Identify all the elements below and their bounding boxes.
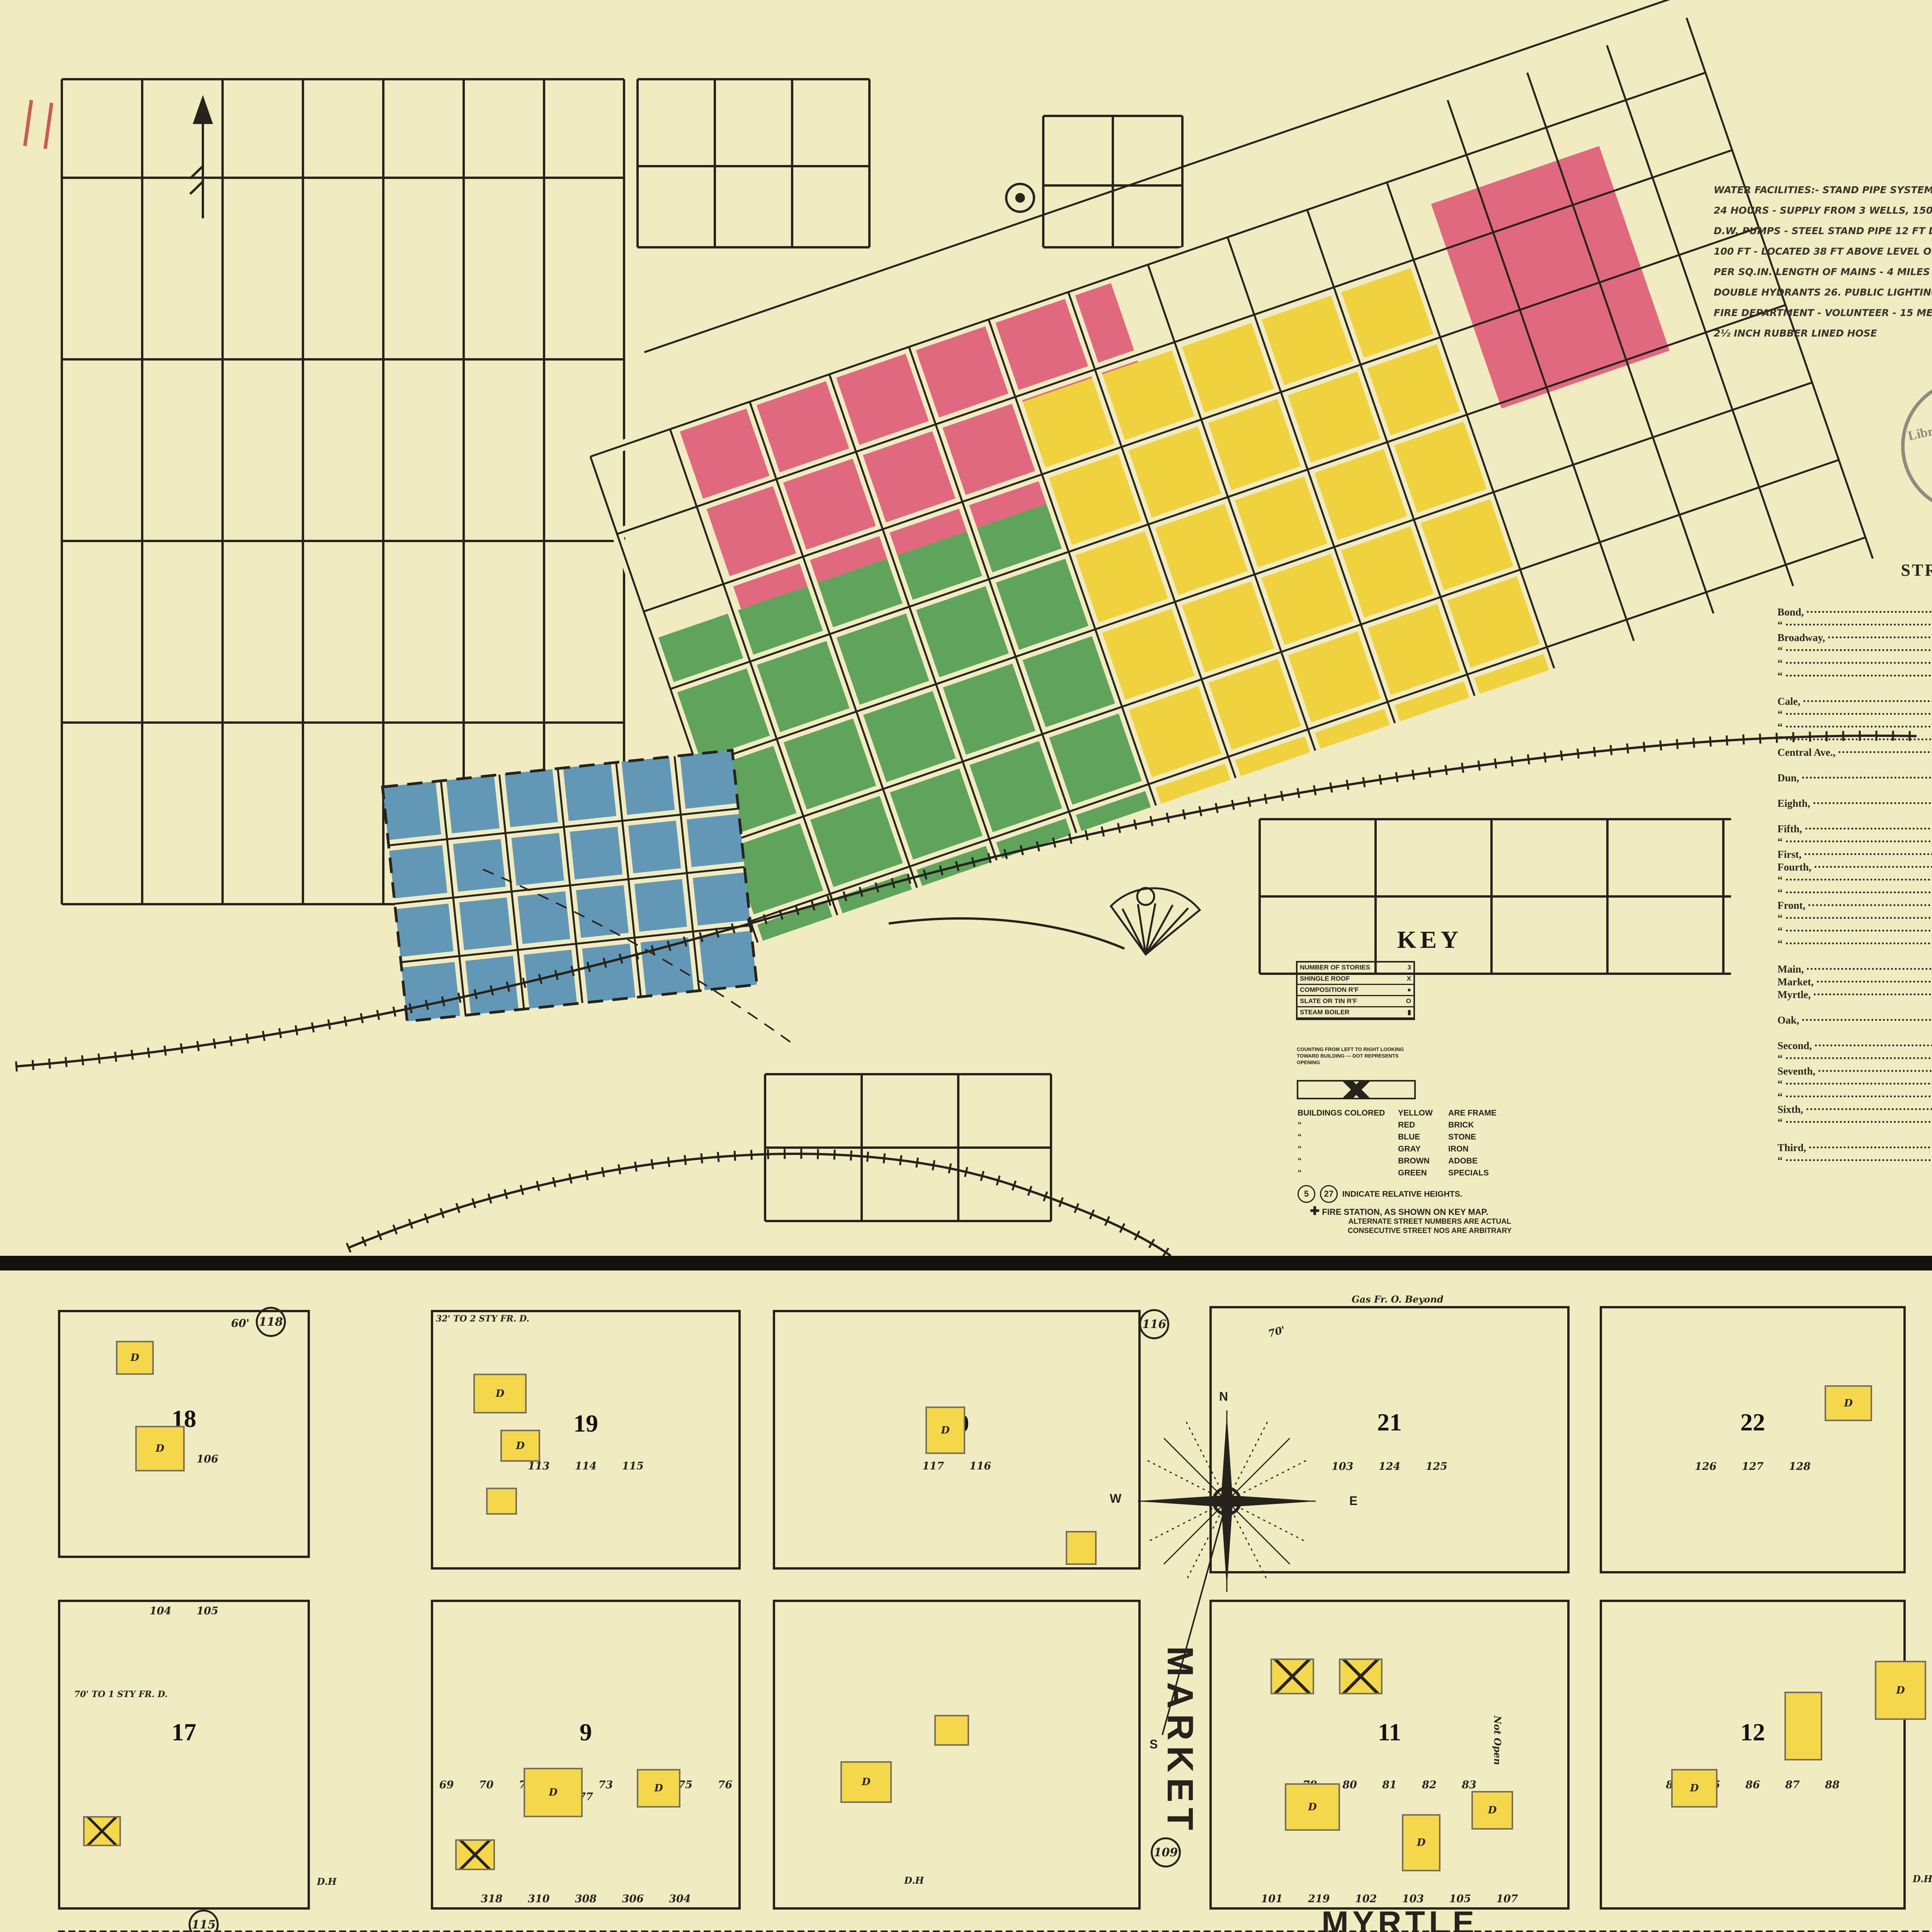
block-top-lot-numbers: 104 105 xyxy=(60,1605,308,1617)
map-item-label: D xyxy=(156,1443,165,1454)
color-material: SPECIALS xyxy=(1448,1167,1562,1179)
dot-leader xyxy=(1786,726,1932,728)
dot-leader xyxy=(1786,879,1932,881)
index-row: B xyxy=(1777,594,1932,606)
map-item-label: MARKET xyxy=(1159,1646,1201,1835)
block-number: 17 xyxy=(60,1718,308,1747)
map-item-label: D.H xyxy=(1913,1873,1932,1884)
key-color-row: “ BROWN ADOBE xyxy=(1298,1155,1562,1167)
map-item: D xyxy=(840,1761,892,1803)
symbol-glyph: 3 xyxy=(1408,964,1411,971)
block-bottom-lot-numbers: 101 219 102 103 105 107 xyxy=(1212,1893,1567,1905)
street-name: Seventh, xyxy=(1777,1065,1815,1077)
key-alt-note-2: CONSECUTIVE STREET NOS ARE ARBITRARY xyxy=(1294,1227,1565,1235)
map-item-label: 60' xyxy=(231,1317,250,1330)
fire-station-cross-icon: ✚ xyxy=(1310,1205,1320,1218)
map-item-label: D.H xyxy=(904,1875,924,1886)
map-item-label: D xyxy=(654,1782,663,1794)
dot-leader xyxy=(1807,611,1932,613)
street-name: “ xyxy=(1777,657,1783,669)
key-fire-station-line: ✚ FIRE STATION, AS SHOWN ON KEY MAP. xyxy=(1310,1204,1488,1218)
map-item xyxy=(1066,1531,1097,1565)
block-lot-numbers: 113 114 115 xyxy=(433,1460,738,1472)
dot-leader xyxy=(1786,1095,1932,1097)
map-item: Not Open xyxy=(1492,1716,1503,1765)
compass-north-label: N xyxy=(1219,1390,1228,1403)
street-name: “ xyxy=(1777,874,1783,886)
key-symbol-row: COMPOSITION R'F ● xyxy=(1298,985,1413,996)
dot-leader xyxy=(1808,904,1932,906)
dot-leader xyxy=(1805,828,1932,830)
key-symbol-row: SHINGLE ROOF X xyxy=(1298,974,1413,985)
index-row: Oak, 1 xyxy=(1777,1014,1932,1027)
dot-leader xyxy=(1814,993,1932,995)
key-color-row: BUILDINGS COLORED YELLOW ARE FRAME xyxy=(1298,1107,1562,1119)
street-name: Fifth, xyxy=(1777,823,1802,835)
dot-leader xyxy=(1786,738,1932,740)
dot-leader xyxy=(1786,917,1932,919)
street-name: Front, xyxy=(1777,900,1805,912)
index-row: Seventh, 1-23 *4 xyxy=(1777,1065,1932,1078)
index-row: D xyxy=(1777,759,1932,772)
index-row: “ 300-313 4 xyxy=(1777,836,1932,849)
key-color-row: “ RED BRICK xyxy=(1298,1119,1562,1131)
index-row: Fifth, 1-212 3 xyxy=(1777,823,1932,836)
map-item-label: D xyxy=(941,1425,950,1436)
map-item-label: D.H xyxy=(317,1876,337,1887)
map-item xyxy=(1784,1692,1822,1760)
block-lot-numbers: 69 70 71 72 73 74 75 76 77 xyxy=(433,1779,738,1803)
block-number: 9 xyxy=(433,1718,738,1747)
block-lot-numbers: 79 80 81 82 83 xyxy=(1212,1779,1567,1791)
color-prefix: “ xyxy=(1298,1155,1398,1167)
map-item: D xyxy=(116,1341,154,1375)
key-heights-line: 5 27 INDICATE RELATIVE HEIGHTS. xyxy=(1298,1185,1462,1203)
index-row: Cale, 101-323 *2 xyxy=(1777,696,1932,708)
map-item-label: D xyxy=(1844,1398,1853,1409)
heights-note: INDICATE RELATIVE HEIGHTS. xyxy=(1342,1190,1463,1199)
index-row: Myrtle, 200-407 1 xyxy=(1777,989,1932,1002)
street-name: “ xyxy=(1777,1116,1783,1128)
index-row: “ near Central Ave. 1 xyxy=(1777,938,1932,951)
street-name: “ xyxy=(1777,938,1783,950)
key-alt-note-1: ALTERNATE STREET NUMBERS ARE ACTUAL xyxy=(1294,1218,1565,1226)
map-item: 32' TO 2 STY FR. D. xyxy=(436,1314,529,1324)
color-prefix: “ xyxy=(1298,1119,1398,1131)
color-name: BLUE xyxy=(1398,1131,1448,1143)
city-block: 12 84 85 86 87 88 xyxy=(1600,1600,1906,1910)
stand-pipe-icon xyxy=(1006,184,1034,212)
index-row: Third, 1-212 2 xyxy=(1777,1142,1932,1155)
color-prefix: “ xyxy=(1298,1143,1398,1155)
map-item xyxy=(934,1715,969,1746)
water-note-line: 2½ INCH RUBBER LINED HOSE xyxy=(1714,323,1932,344)
dot-leader xyxy=(1786,1057,1932,1059)
map-key: KEY NUMBER OF STORIES 3 SHINGLE ROOF X C… xyxy=(1294,925,1565,1225)
index-row: “ 300-313 4 xyxy=(1777,1116,1932,1129)
map-item: MARKET xyxy=(1159,1646,1201,1835)
dot-leader xyxy=(1804,853,1932,855)
map-item: Gas Fr. O. Beyond xyxy=(1352,1294,1444,1305)
city-block: 22 126 127 128 xyxy=(1600,1306,1906,1573)
street-name: Dun, xyxy=(1777,772,1799,784)
map-item: D xyxy=(500,1430,540,1462)
map-item: MYRTLE xyxy=(1321,1904,1478,1932)
street-name: “ xyxy=(1777,1155,1783,1167)
dot-leader xyxy=(1818,1070,1932,1072)
block-bottom-lot-numbers: 318 310 308 306 304 xyxy=(433,1893,738,1905)
compass-east-label: E xyxy=(1349,1495,1357,1507)
index-row: “ 200-708 *4 xyxy=(1777,708,1932,721)
stable-symbol-icon xyxy=(1297,1080,1416,1099)
block-number: 21 xyxy=(1212,1408,1567,1437)
index-row: “ 400-623 3 xyxy=(1777,619,1932,632)
index-row: “ 300-313 4 xyxy=(1777,1053,1932,1065)
index-row: M xyxy=(1777,951,1932,963)
city-block: 10 xyxy=(773,1600,1141,1910)
street-name: “ xyxy=(1777,670,1783,682)
map-item: 118 xyxy=(256,1307,286,1337)
color-name: GREEN xyxy=(1398,1167,1448,1179)
key-symbol-table: NUMBER OF STORIES 3 SHINGLE ROOF X COMPO… xyxy=(1296,961,1415,1020)
dot-leader xyxy=(1786,840,1932,842)
street-name: Oak, xyxy=(1777,1014,1799,1026)
index-row: First, 15-211 *2 xyxy=(1777,849,1932,861)
map-item: D.H xyxy=(904,1875,924,1886)
block-lot-numbers: 84 85 86 87 88 xyxy=(1602,1779,1903,1791)
map-item: D xyxy=(1875,1661,1926,1720)
dot-leader xyxy=(1806,1108,1932,1110)
street-name: Cale, xyxy=(1777,696,1800,707)
map-item-label: D xyxy=(1308,1801,1317,1813)
street-name: “ xyxy=(1777,1091,1783,1103)
street-name: “ xyxy=(1777,619,1783,631)
dot-leader xyxy=(1786,1083,1932,1085)
index-row: “ 400-625 3 xyxy=(1777,645,1932,657)
symbol-glyph: ▮ xyxy=(1408,1009,1411,1016)
compass-south-label: S xyxy=(1150,1738,1158,1750)
map-item: D xyxy=(1285,1783,1340,1831)
index-row: “ 401-623 *3 xyxy=(1777,721,1932,734)
color-prefix: “ xyxy=(1298,1131,1398,1143)
dot-leader xyxy=(1786,713,1932,715)
street-name: “ xyxy=(1777,1053,1783,1065)
map-item: 109 xyxy=(1151,1837,1181,1867)
key-title: KEY xyxy=(1294,925,1565,954)
index-row: “ 300-313 4 xyxy=(1777,887,1932,900)
block-number: 11 xyxy=(1212,1718,1567,1747)
index-row: Fourth, 1-211 *3 xyxy=(1777,861,1932,874)
symbol-glyph: ● xyxy=(1407,986,1411,994)
fire-station-note: FIRE STATION, AS SHOWN ON KEY MAP. xyxy=(1322,1207,1488,1217)
map-item-label: 118 xyxy=(259,1315,283,1329)
map-item-label: Gas Fr. O. Beyond xyxy=(1352,1294,1444,1305)
color-material: STONE xyxy=(1448,1131,1562,1143)
index-row: Front, 200-323 2 xyxy=(1777,900,1932,912)
symbol-label: STEAM BOILER xyxy=(1300,1009,1349,1016)
map-item: D xyxy=(1471,1791,1513,1830)
map-item xyxy=(1339,1658,1383,1694)
street-name: Myrtle, xyxy=(1777,989,1811,1001)
symbol-glyph: X xyxy=(1407,975,1411,983)
street-name: Main, xyxy=(1777,963,1804,975)
map-item: D xyxy=(925,1406,965,1454)
index-row: “ 300-313 4 xyxy=(1777,1155,1932,1167)
water-note-line: D.W. PUMPS - STEEL STAND PIPE 12 FT DIAM… xyxy=(1714,221,1932,241)
dot-leader xyxy=(1786,942,1932,944)
color-prefix: “ xyxy=(1298,1167,1398,1179)
symbol-glyph: O xyxy=(1406,997,1411,1005)
street-name: “ xyxy=(1777,721,1783,733)
index-row: “ 2-220 *3 xyxy=(1777,1078,1932,1091)
dot-leader xyxy=(1817,981,1932,983)
dot-leader xyxy=(1786,930,1932,932)
key-map-sections xyxy=(564,0,1873,942)
street-name: “ xyxy=(1777,912,1783,924)
map-item-label: D xyxy=(1690,1782,1699,1794)
index-row: S xyxy=(1777,1027,1932,1040)
map-item: 60' xyxy=(231,1317,250,1330)
index-row: F xyxy=(1777,810,1932,823)
dot-leader xyxy=(1815,1044,1932,1046)
street-name: “ xyxy=(1777,645,1783,656)
dot-leader xyxy=(1786,624,1932,626)
city-block: 17 104 105 xyxy=(58,1600,310,1910)
dot-leader xyxy=(1807,968,1932,970)
city-block: 21 103 124 125 xyxy=(1209,1306,1570,1573)
street-name: “ xyxy=(1777,1078,1783,1090)
map-item-label: 32' TO 2 STY FR. D. xyxy=(436,1314,529,1324)
dot-leader xyxy=(1786,662,1932,664)
map-item-label: D xyxy=(131,1352,139,1364)
city-block: 11 79 80 81 82 83 101 219 102 103 105 10… xyxy=(1209,1600,1570,1910)
street-name: Market, xyxy=(1777,976,1814,988)
street-name: Second, xyxy=(1777,1040,1812,1052)
color-material: ARE FRAME xyxy=(1448,1107,1562,1119)
index-streets-heading: STREETS. xyxy=(1777,560,1932,580)
street-name: Eighth, xyxy=(1777,798,1810,810)
index-row: “ 300-313 4 xyxy=(1777,1091,1932,1104)
street-name: Sixth, xyxy=(1777,1104,1803,1116)
key-counting-note: COUNTING FROM LEFT TO RIGHT LOOKING TOWA… xyxy=(1297,1046,1413,1066)
key-symbol-row: SLATE OR TIN R'F O xyxy=(1298,996,1413,1007)
map-item-label: D xyxy=(1488,1804,1497,1816)
city-block: 19 113 114 115 xyxy=(431,1310,741,1570)
section-divider-bar xyxy=(0,1256,1932,1270)
key-color-row: “ BLUE STONE xyxy=(1298,1131,1562,1143)
dot-leader xyxy=(1786,891,1932,893)
street-name: Bond, xyxy=(1777,606,1804,618)
map-item xyxy=(1270,1658,1314,1694)
street-name: “ xyxy=(1777,708,1783,720)
map-item-label: D xyxy=(549,1787,558,1798)
block-lot-numbers: 117 116 xyxy=(775,1460,1138,1472)
index-footnote: ✻ Indicates only one side of Street show… xyxy=(1816,1167,1932,1180)
index-row: “ near Eighth 2 xyxy=(1777,734,1932,747)
index-row: Broadway, 100-323 2 xyxy=(1777,632,1932,645)
index-streets-column: STREETS. SHEET B Bond, 100-325 2 “ 400-6… xyxy=(1777,560,1932,1163)
street-name: First, xyxy=(1777,849,1801,861)
height-badge-5: 5 xyxy=(1298,1185,1315,1203)
index-row: “ 400-623 3 xyxy=(1777,912,1932,925)
dot-leader xyxy=(1802,777,1932,779)
symbol-label: NUMBER OF STORIES xyxy=(1300,964,1370,971)
key-symbol-row: NUMBER OF STORIES 3 xyxy=(1298,963,1413,974)
compass-west-label: W xyxy=(1110,1492,1121,1505)
symbol-label: COMPOSITION R'F xyxy=(1300,986,1359,994)
index-row: Market, 1 xyxy=(1777,976,1932,989)
index-row: Sixth, 1-212 3 xyxy=(1777,1104,1932,1116)
index-row: Dun, 4 xyxy=(1777,772,1932,785)
index-row: “ near Central Av. 1 xyxy=(1777,670,1932,683)
dot-leader xyxy=(1809,1146,1932,1148)
dot-leader xyxy=(1786,649,1932,651)
map-item-label: 70' TO 1 STY FR. D. xyxy=(74,1689,168,1699)
dot-leader xyxy=(1786,1159,1932,1161)
key-map-sheet1 xyxy=(383,750,757,1022)
map-item-label: D xyxy=(516,1440,525,1452)
map-item: D.H xyxy=(1913,1873,1932,1884)
index-title: INDEX. xyxy=(1816,495,1932,544)
key-color-row: “ GREEN SPECIALS xyxy=(1298,1167,1562,1179)
map-item-label: 115 xyxy=(192,1918,216,1932)
color-name: BROWN xyxy=(1398,1155,1448,1167)
color-material: ADOBE xyxy=(1448,1155,1562,1167)
street-name: Broadway, xyxy=(1777,632,1825,644)
map-item-label: Not Open xyxy=(1492,1716,1503,1765)
color-prefix: BUILDINGS COLORED xyxy=(1298,1107,1398,1119)
index-row: “ 700-807 4 xyxy=(1777,657,1932,670)
dot-leader xyxy=(1802,1019,1932,1021)
symbol-label: SLATE OR TIN R'F xyxy=(1300,997,1357,1005)
key-symbol-row: STEAM BOILER ▮ xyxy=(1298,1007,1413,1019)
color-material: BRICK xyxy=(1448,1119,1562,1131)
block-number: 12 xyxy=(1602,1718,1903,1747)
map-item: D.H xyxy=(317,1876,337,1887)
street-name: Central Ave., xyxy=(1777,747,1835,759)
map-item xyxy=(486,1488,517,1515)
street-name: Third, xyxy=(1777,1142,1806,1154)
map-item-label: MYRTLE xyxy=(1321,1904,1478,1932)
index-row: C xyxy=(1777,683,1932,696)
dot-leader xyxy=(1803,700,1932,702)
symbol-label: SHINGLE ROOF xyxy=(1300,975,1350,983)
color-name: RED xyxy=(1398,1119,1448,1131)
water-note-line: 24 HOURS - SUPPLY FROM 3 WELLS, 150'FT D… xyxy=(1714,200,1932,221)
street-name: Fourth, xyxy=(1777,861,1811,873)
index-row: Bond, 100-325 2 xyxy=(1777,606,1932,619)
map-item: D xyxy=(1825,1385,1872,1421)
key-color-table: BUILDINGS COLORED YELLOW ARE FRAME “ RED… xyxy=(1298,1107,1562,1179)
water-note-line: 100 FT - LOCATED 38 FT ABOVE LEVEL OF PU… xyxy=(1714,241,1932,262)
block-lot-numbers: 103 124 125 xyxy=(1212,1461,1567,1473)
index-row: T xyxy=(1777,1129,1932,1142)
water-note-line: WATER FACILITIES:- STAND PIPE SYSTEM - T… xyxy=(1714,180,1932,200)
map-item-label: D xyxy=(1417,1837,1426,1849)
color-name: GRAY xyxy=(1398,1143,1448,1155)
street-name: “ xyxy=(1777,925,1783,937)
map-item: 70' TO 1 STY FR. D. xyxy=(74,1689,168,1699)
dot-leader xyxy=(1786,1121,1932,1123)
water-note-line: PER SQ.IN. LENGTH OF MAINS - 4 MILES - S… xyxy=(1714,262,1932,282)
dot-leader xyxy=(1815,866,1932,868)
water-note-line: DOUBLE HYDRANTS 26. PUBLIC LIGHTING: ELE… xyxy=(1714,282,1932,303)
index-row: E xyxy=(1777,785,1932,798)
map-item: D xyxy=(135,1426,185,1471)
map-item-label: 109 xyxy=(1154,1846,1178,1859)
dot-leader xyxy=(1828,636,1932,638)
map-item xyxy=(83,1816,121,1846)
map-item xyxy=(58,1930,1932,1932)
index-streets-rows: B Bond, 100-325 2 “ 400-623 3 Broadway, xyxy=(1777,594,1932,1167)
map-item: D xyxy=(524,1768,583,1817)
dot-leader xyxy=(1786,675,1932,677)
map-item-label: D xyxy=(862,1776,871,1788)
index-row: Main, 200-407 1 xyxy=(1777,963,1932,976)
index-row: Second, 1-217 2 xyxy=(1777,1040,1932,1053)
map-item: 116 xyxy=(1139,1309,1169,1339)
map-item: D xyxy=(1671,1769,1718,1808)
key-color-row: “ GRAY IRON xyxy=(1298,1143,1562,1155)
dot-leader xyxy=(1813,802,1932,804)
street-name: “ xyxy=(1777,836,1783,848)
index-row: “ 2-212 *2 xyxy=(1777,874,1932,887)
dot-leader xyxy=(1838,751,1932,753)
index-row: O xyxy=(1777,1002,1932,1014)
north-arrow-icon xyxy=(190,99,211,218)
map-item-label: 116 xyxy=(1142,1318,1167,1331)
color-material: IRON xyxy=(1448,1143,1562,1155)
water-note-line: FIRE DEPARTMENT - VOLUNTEER - 15 MEN. ON… xyxy=(1714,303,1932,323)
map-item: D xyxy=(473,1374,527,1413)
map-item xyxy=(455,1839,495,1870)
map-item: D xyxy=(1402,1814,1440,1871)
index-row: Eighth, 2 & 4 xyxy=(1777,798,1932,810)
color-name: YELLOW xyxy=(1398,1107,1448,1119)
street-name: “ xyxy=(1777,887,1783,899)
street-name: “ xyxy=(1777,734,1783,746)
block-lot-numbers: 126 127 128 xyxy=(1602,1461,1903,1473)
round-house xyxy=(1111,888,1200,954)
height-badge-27: 27 xyxy=(1320,1185,1338,1203)
index-row: Central Ave., 1 xyxy=(1777,747,1932,759)
map-item-label: D xyxy=(1896,1685,1905,1696)
sanborn-map-sheet: SANBORN MAP COMPANY. 11 BROADWAY, NEW YO… xyxy=(0,0,1932,1932)
map-item-label: D xyxy=(496,1388,505,1400)
index-row: “ 700-819 4 xyxy=(1777,925,1932,938)
map-item: D xyxy=(637,1769,680,1808)
water-facilities-lines: WATER FACILITIES:- STAND PIPE SYSTEM - T… xyxy=(1714,180,1932,344)
